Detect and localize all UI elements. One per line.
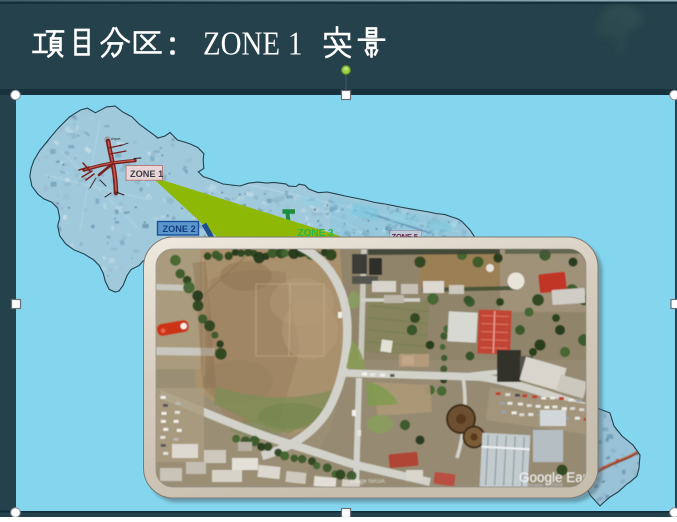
svg-text:ZONE 1: ZONE 1: [130, 169, 163, 179]
svg-text:Airport: Airport: [111, 137, 121, 141]
svg-text:1: 1: [288, 24, 302, 62]
svg-text:ZONE 2: ZONE 2: [163, 224, 196, 234]
svg-text:ZONE: ZONE: [203, 24, 280, 62]
svg-text:Image NASA: Image NASA: [350, 479, 385, 485]
